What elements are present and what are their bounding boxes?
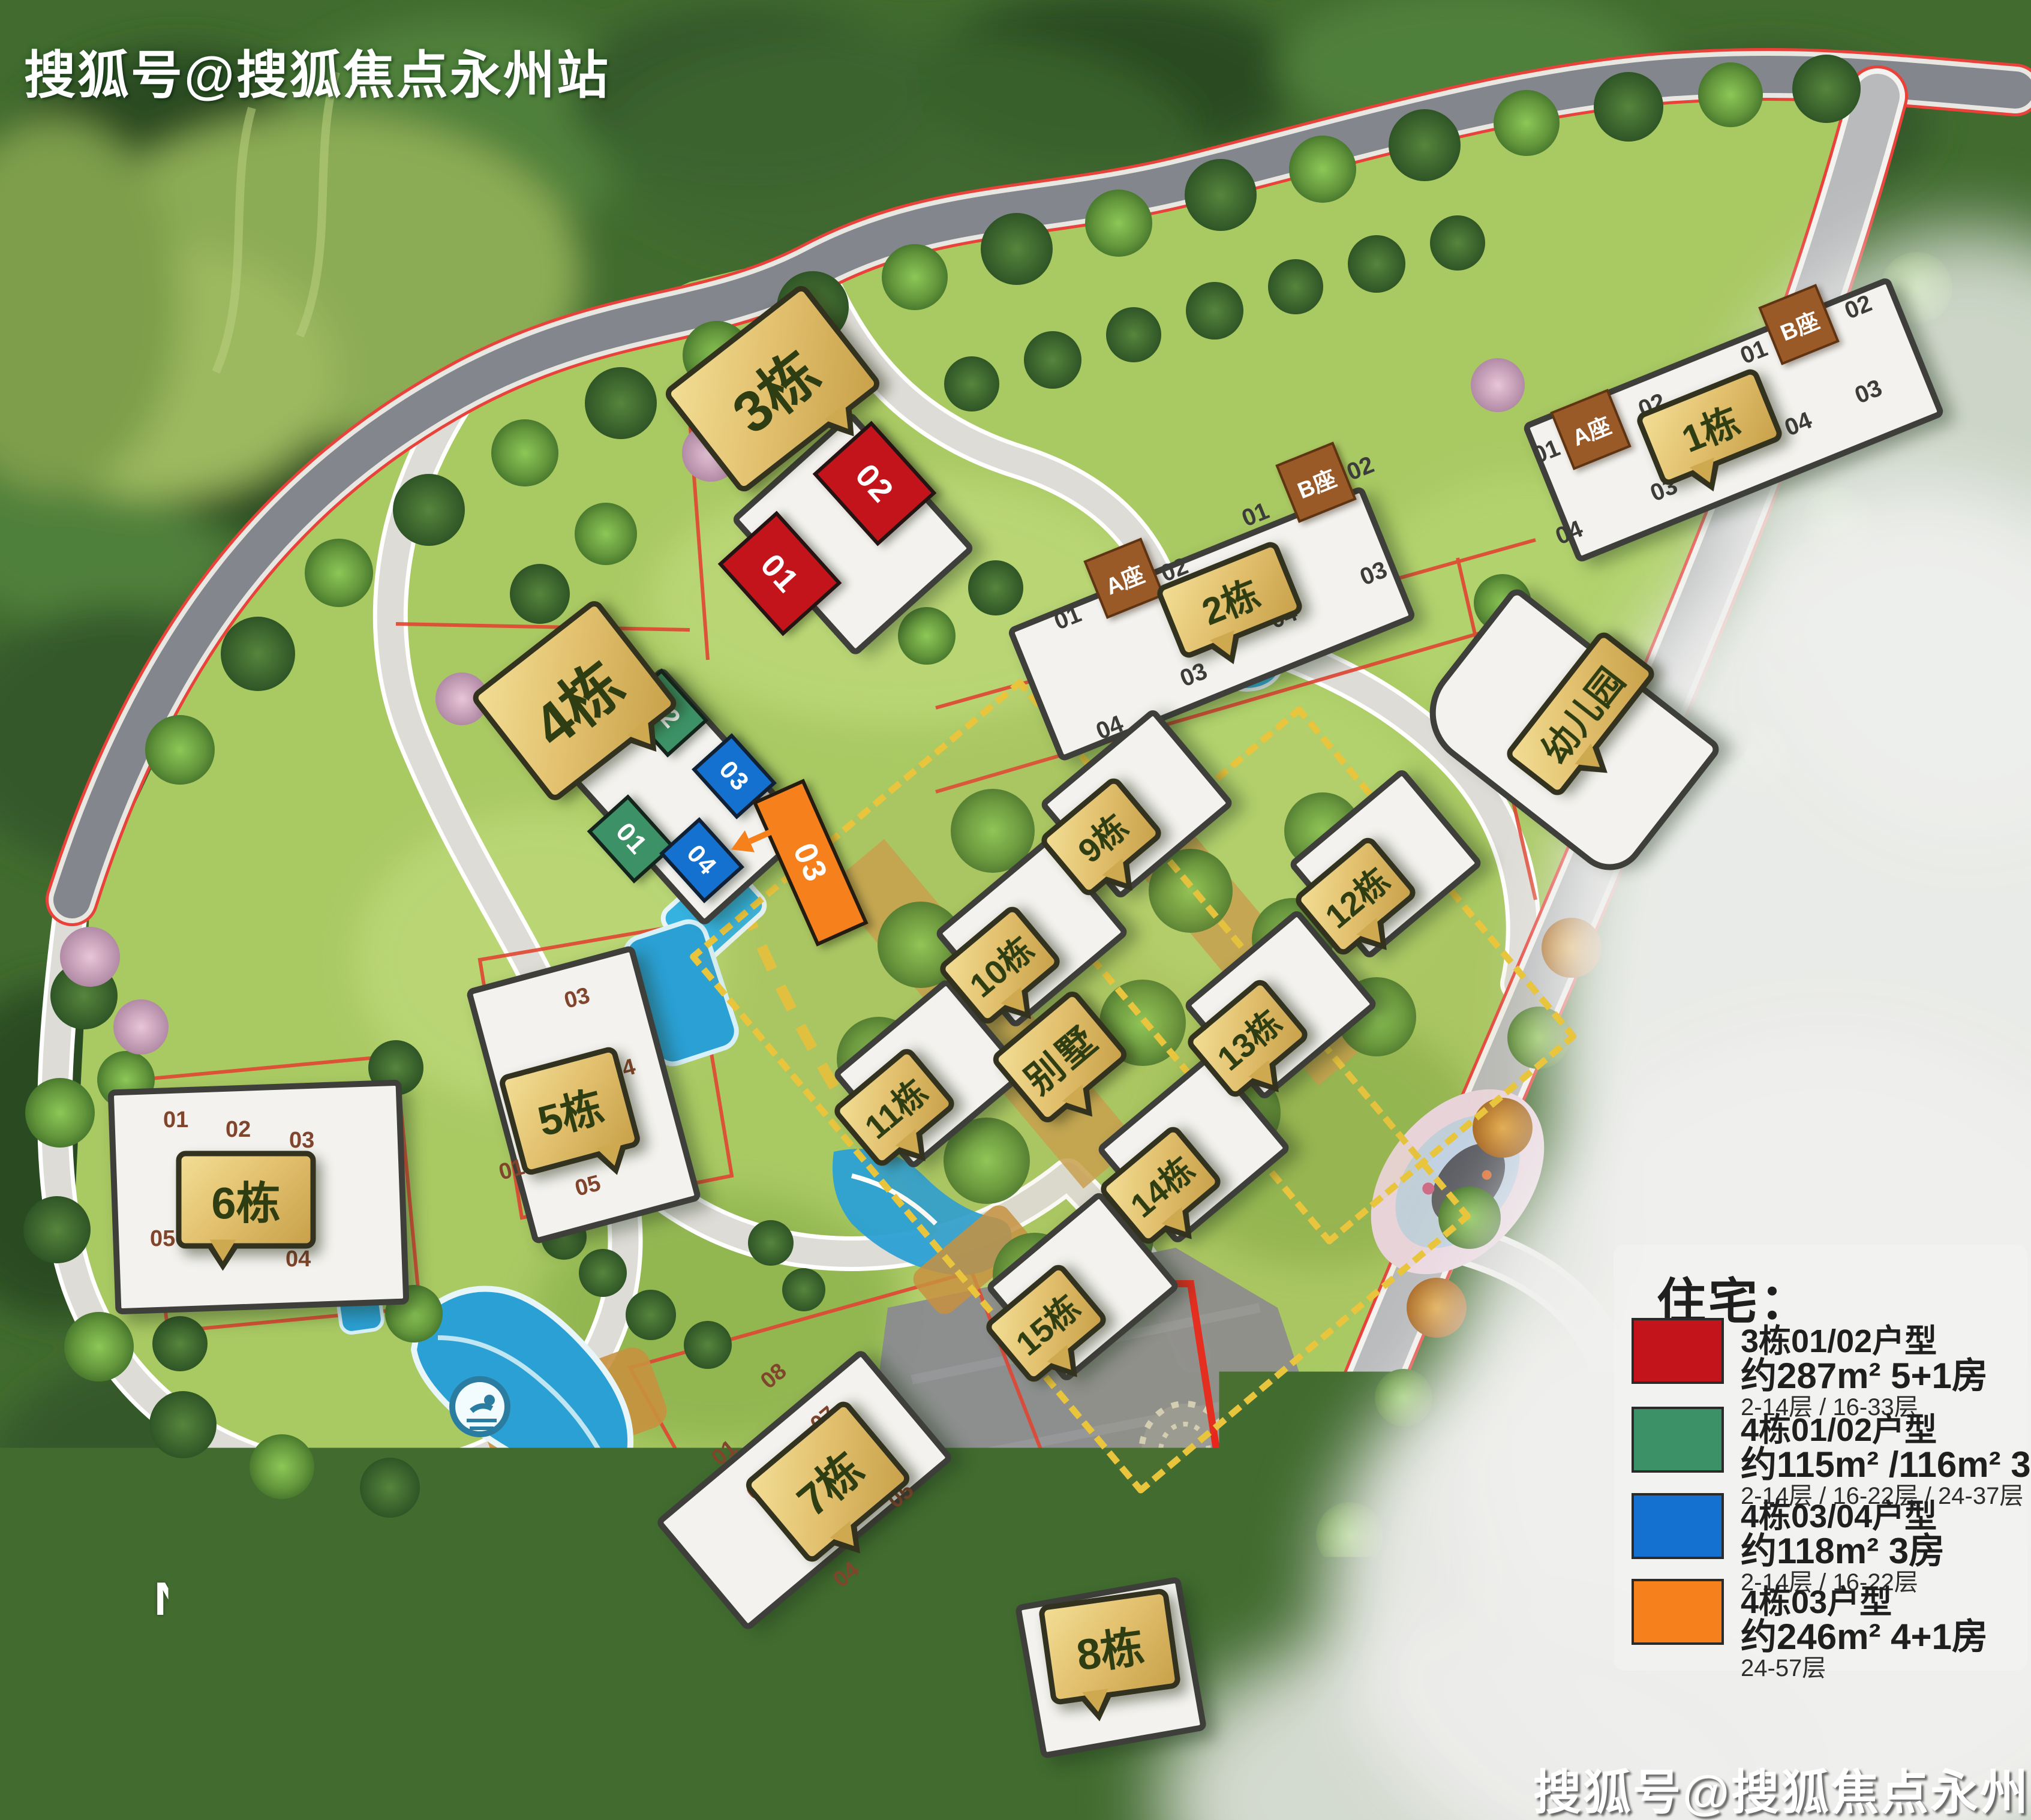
legend-swatch-orange (1632, 1579, 1724, 1645)
north-label: N (154, 1572, 188, 1626)
legend-swatch-green (1632, 1407, 1724, 1473)
watermark-bottom-right: 搜狐号@搜狐焦点永州站 (1533, 1754, 2031, 1820)
legend-swatch-blue (1632, 1493, 1724, 1559)
b6-unit: 02 (226, 1117, 251, 1143)
building-8-flag: 8栋 (1038, 1588, 1181, 1706)
b6-unit: 05 (150, 1226, 175, 1252)
b6-unit: 01 (163, 1107, 188, 1133)
watermark-top-left: 搜狐号@搜狐焦点永州站 (24, 33, 610, 108)
b6-unit: 03 (289, 1128, 314, 1154)
building-6-flag: 6栋 (176, 1151, 316, 1249)
b6-unit: 04 (286, 1247, 311, 1272)
legend-panel: 住宅： 3栋01/02户型 约287m² 5+1房 2-14层 / 16-33层… (1614, 1245, 2027, 1671)
legend-swatch-red (1632, 1318, 1724, 1384)
site-plan: 01 02 02 01 03 04 03 A座 B座 A座 B座 01 02 0… (0, 0, 2031, 1820)
legend-item-floors: 24-57层 (1741, 1648, 1826, 1683)
north-arrow-icon (123, 1620, 261, 1746)
north-compass: N (123, 1572, 261, 1752)
